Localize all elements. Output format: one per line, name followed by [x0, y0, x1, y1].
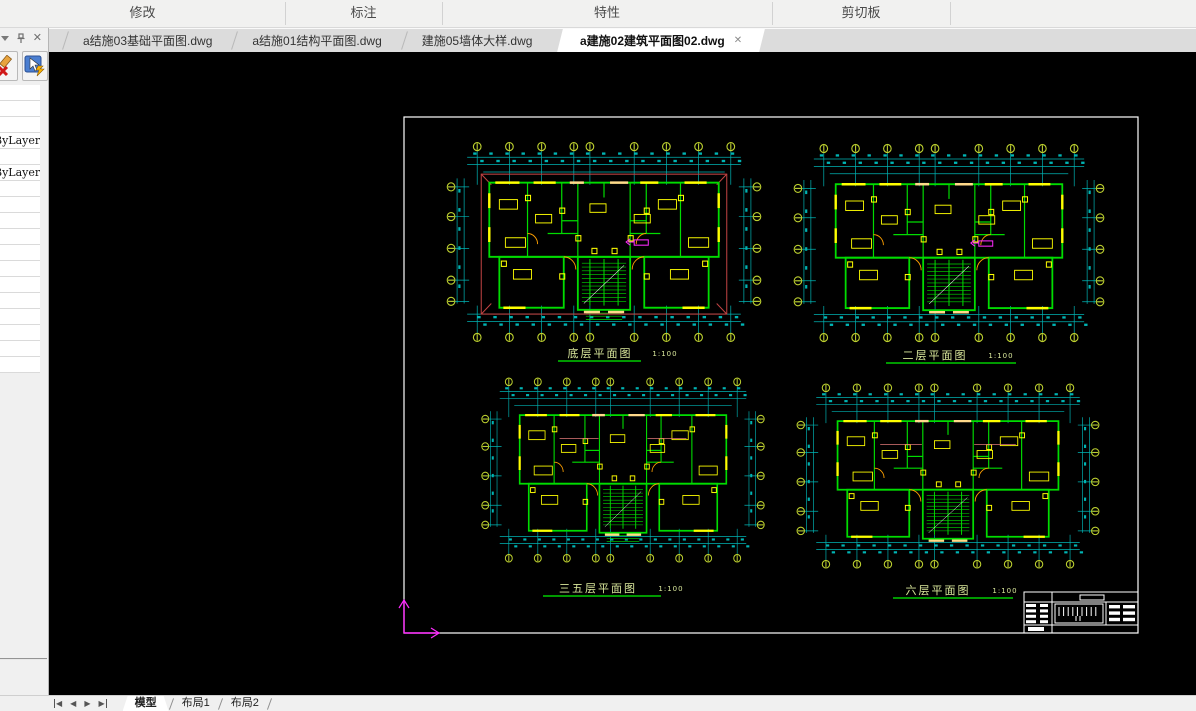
cursor-bolt-icon [24, 55, 46, 77]
property-row[interactable] [0, 229, 40, 245]
plan-title: 底层平面图 [568, 346, 633, 360]
quick-select-button[interactable] [0, 51, 18, 81]
prev-tab-icon[interactable]: ◀ [70, 699, 76, 708]
plan-scale: 1:100 [652, 350, 677, 358]
panel-header: ✕ [0, 28, 48, 48]
property-row[interactable] [0, 149, 40, 165]
doc-tab-2[interactable]: a结施01结构平面图.dwg [232, 29, 401, 52]
plan-title: 二层平面图 [903, 349, 968, 362]
property-row[interactable] [0, 357, 40, 373]
property-row[interactable] [0, 309, 40, 325]
tab-divider [267, 698, 272, 710]
property-row[interactable] [0, 101, 40, 117]
doc-tab-label: a建施02建筑平面图02.dwg [580, 32, 725, 49]
tab-divider [62, 31, 69, 49]
floor-plan [797, 384, 1099, 568]
plan-title: 三五层平面图 [559, 582, 637, 595]
tab-layout1[interactable]: 布局1 [174, 696, 218, 711]
document-tab-bar: a结施03基础平面图.dwg a结施01结构平面图.dwg 建施05墙体大样.d… [49, 28, 1196, 52]
next-tab-icon[interactable]: ▶ [84, 699, 90, 708]
doc-tab-1[interactable]: a结施03基础平面图.dwg [63, 29, 232, 52]
property-row[interactable] [0, 341, 40, 357]
property-row[interactable] [0, 117, 40, 133]
layout-tab-bar: ◀ ◀ ▶ ▶ 模型 布局1 布局2 [0, 695, 1196, 711]
properties-panel: ✕ ByLayerByLayer [0, 28, 49, 710]
quick-properties-button[interactable] [22, 51, 48, 81]
cad-drawing[interactable]: 底层平面图 1:100 二层平面图 1:100 三五层平面图 1:100 六层平… [49, 52, 1196, 695]
ribbon-separator [285, 2, 286, 25]
pencil-x-icon [0, 55, 15, 77]
tab-navigation: ◀ ◀ ▶ ▶ [54, 699, 107, 708]
plan-scale: 1:100 [992, 587, 1017, 595]
first-tab-icon[interactable]: ◀ [54, 699, 62, 708]
ribbon-group-clipboard: 剪切板 [772, 0, 950, 27]
panel-gutter [40, 85, 48, 710]
property-row[interactable] [0, 213, 40, 229]
doc-tab-3[interactable]: 建施05墙体大样.dwg [402, 29, 553, 52]
drawing-canvas[interactable]: 底层平面图 1:100 二层平面图 1:100 三五层平面图 1:100 六层平… [49, 52, 1196, 695]
plan-scale: 1:100 [658, 585, 683, 593]
doc-tab-label: a结施03基础平面图.dwg [83, 32, 212, 49]
property-row[interactable] [0, 85, 40, 101]
close-icon[interactable]: ✕ [33, 33, 42, 44]
doc-tab-label: a结施01结构平面图.dwg [252, 32, 381, 49]
floor-plan [794, 145, 1104, 342]
property-row[interactable] [0, 245, 40, 261]
property-grid: ByLayerByLayer [0, 85, 40, 373]
ucs-icon [399, 600, 439, 638]
ribbon-separator [442, 2, 443, 25]
plan-labels: 底层平面图 1:100 二层平面图 1:100 三五层平面图 1:100 六层平… [543, 346, 1018, 598]
property-row[interactable] [0, 261, 40, 277]
panel-toolbar [0, 48, 48, 84]
doc-tab-4-active[interactable]: a建施02建筑平面图02.dwg ✕ [558, 29, 766, 52]
chevron-down-icon[interactable] [1, 36, 9, 41]
cad-application-window: 修改 标注 特性 剪切板 a结施03基础平面图.dwg a结施01结构平面图.d… [0, 0, 1196, 710]
property-row[interactable] [0, 181, 40, 197]
property-row[interactable] [0, 197, 40, 213]
property-row[interactable] [0, 293, 40, 309]
floor-plan [447, 143, 761, 342]
ribbon-group-modify: 修改 [0, 0, 285, 27]
last-tab-icon[interactable]: ▶ [98, 699, 106, 708]
property-row[interactable]: ByLayer [0, 133, 40, 149]
doc-tab-label: 建施05墙体大样.dwg [422, 32, 533, 49]
ribbon-separator [950, 2, 951, 25]
tab-divider [401, 31, 408, 49]
tab-layout2[interactable]: 布局2 [223, 696, 267, 711]
plan-scale: 1:100 [988, 352, 1013, 360]
layout-tabs: 模型 布局1 布局2 [123, 696, 272, 711]
property-row[interactable] [0, 277, 40, 293]
close-icon[interactable]: ✕ [734, 35, 742, 46]
ribbon-separator [772, 2, 773, 25]
property-row[interactable]: ByLayer [0, 165, 40, 181]
ribbon-bar: 修改 标注 特性 剪切板 [0, 0, 1196, 28]
plan-title: 六层平面图 [906, 584, 971, 597]
tab-model[interactable]: 模型 [123, 696, 169, 711]
property-row[interactable] [0, 325, 40, 341]
floor-plan [482, 378, 764, 562]
tab-divider [231, 31, 238, 49]
pin-icon[interactable] [16, 33, 26, 44]
ribbon-group-properties: 特性 [442, 0, 772, 27]
sheet-frame [404, 117, 1138, 633]
title-block [1024, 592, 1138, 633]
ribbon-group-annotate: 标注 [285, 0, 442, 27]
